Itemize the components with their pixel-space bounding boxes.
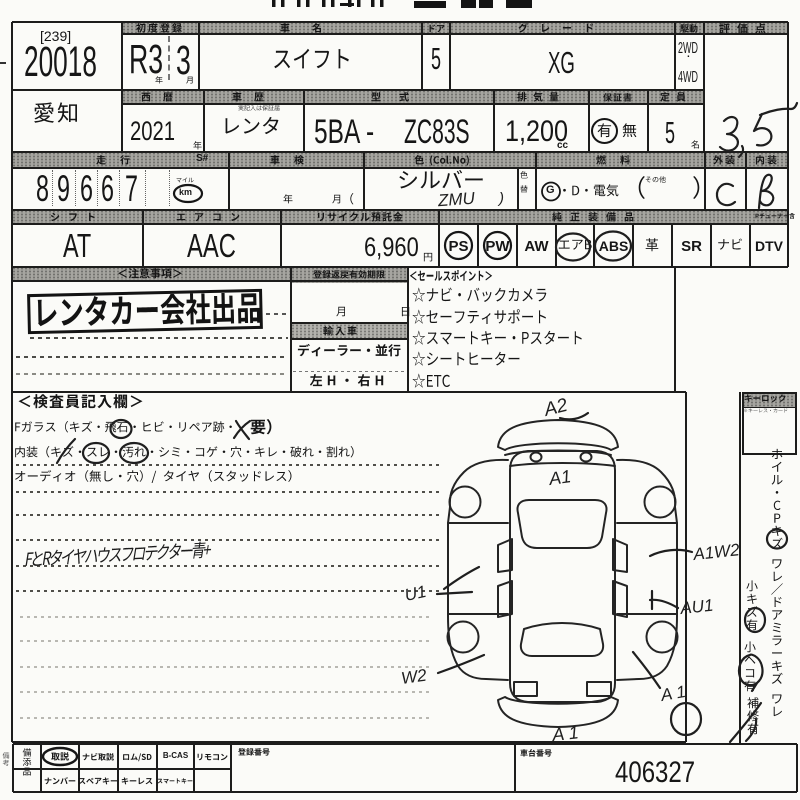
svg-text:A2: A2 bbox=[541, 395, 570, 421]
svg-text:A 1: A 1 bbox=[550, 722, 579, 745]
svg-text:A 1: A 1 bbox=[658, 682, 687, 705]
svg-text:A1W2: A1W2 bbox=[691, 540, 741, 564]
svg-text:A1: A1 bbox=[547, 466, 573, 489]
svg-text:U1: U1 bbox=[403, 582, 428, 605]
svg-text:AU1: AU1 bbox=[678, 596, 714, 618]
svg-text:W2: W2 bbox=[400, 666, 428, 688]
